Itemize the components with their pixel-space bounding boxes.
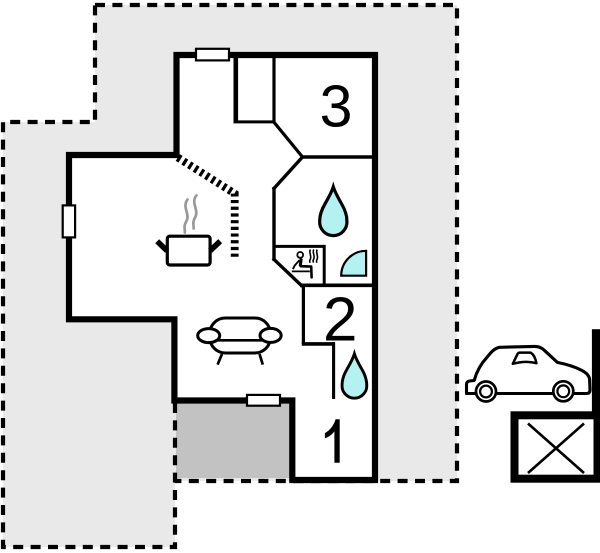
- svg-text:2: 2: [323, 285, 357, 354]
- svg-text:3: 3: [320, 74, 353, 140]
